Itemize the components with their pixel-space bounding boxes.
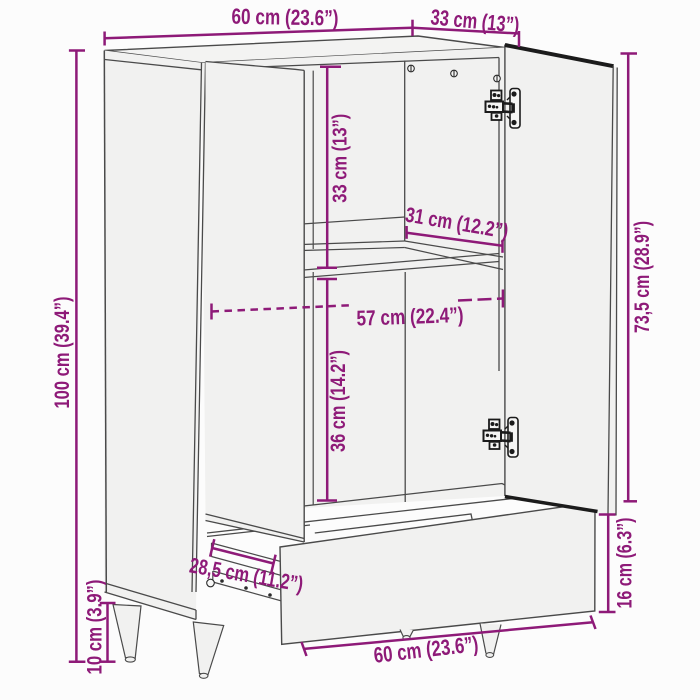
svg-text:36 cm (14.2”): 36 cm (14.2”) (327, 350, 350, 452)
svg-text:100 cm (39.4”): 100 cm (39.4”) (50, 297, 74, 409)
svg-text:33 cm (13”): 33 cm (13”) (328, 114, 351, 203)
svg-text:73,5 cm (28.9”): 73,5 cm (28.9”) (630, 221, 654, 333)
svg-text:60 cm (23.6”): 60 cm (23.6”) (231, 4, 338, 31)
svg-text:16 cm (6.3”): 16 cm (6.3”) (613, 518, 637, 609)
svg-text:10 cm (3.9”): 10 cm (3.9”) (83, 580, 107, 675)
svg-text:57 cm (22.4”): 57 cm (22.4”) (356, 303, 464, 331)
